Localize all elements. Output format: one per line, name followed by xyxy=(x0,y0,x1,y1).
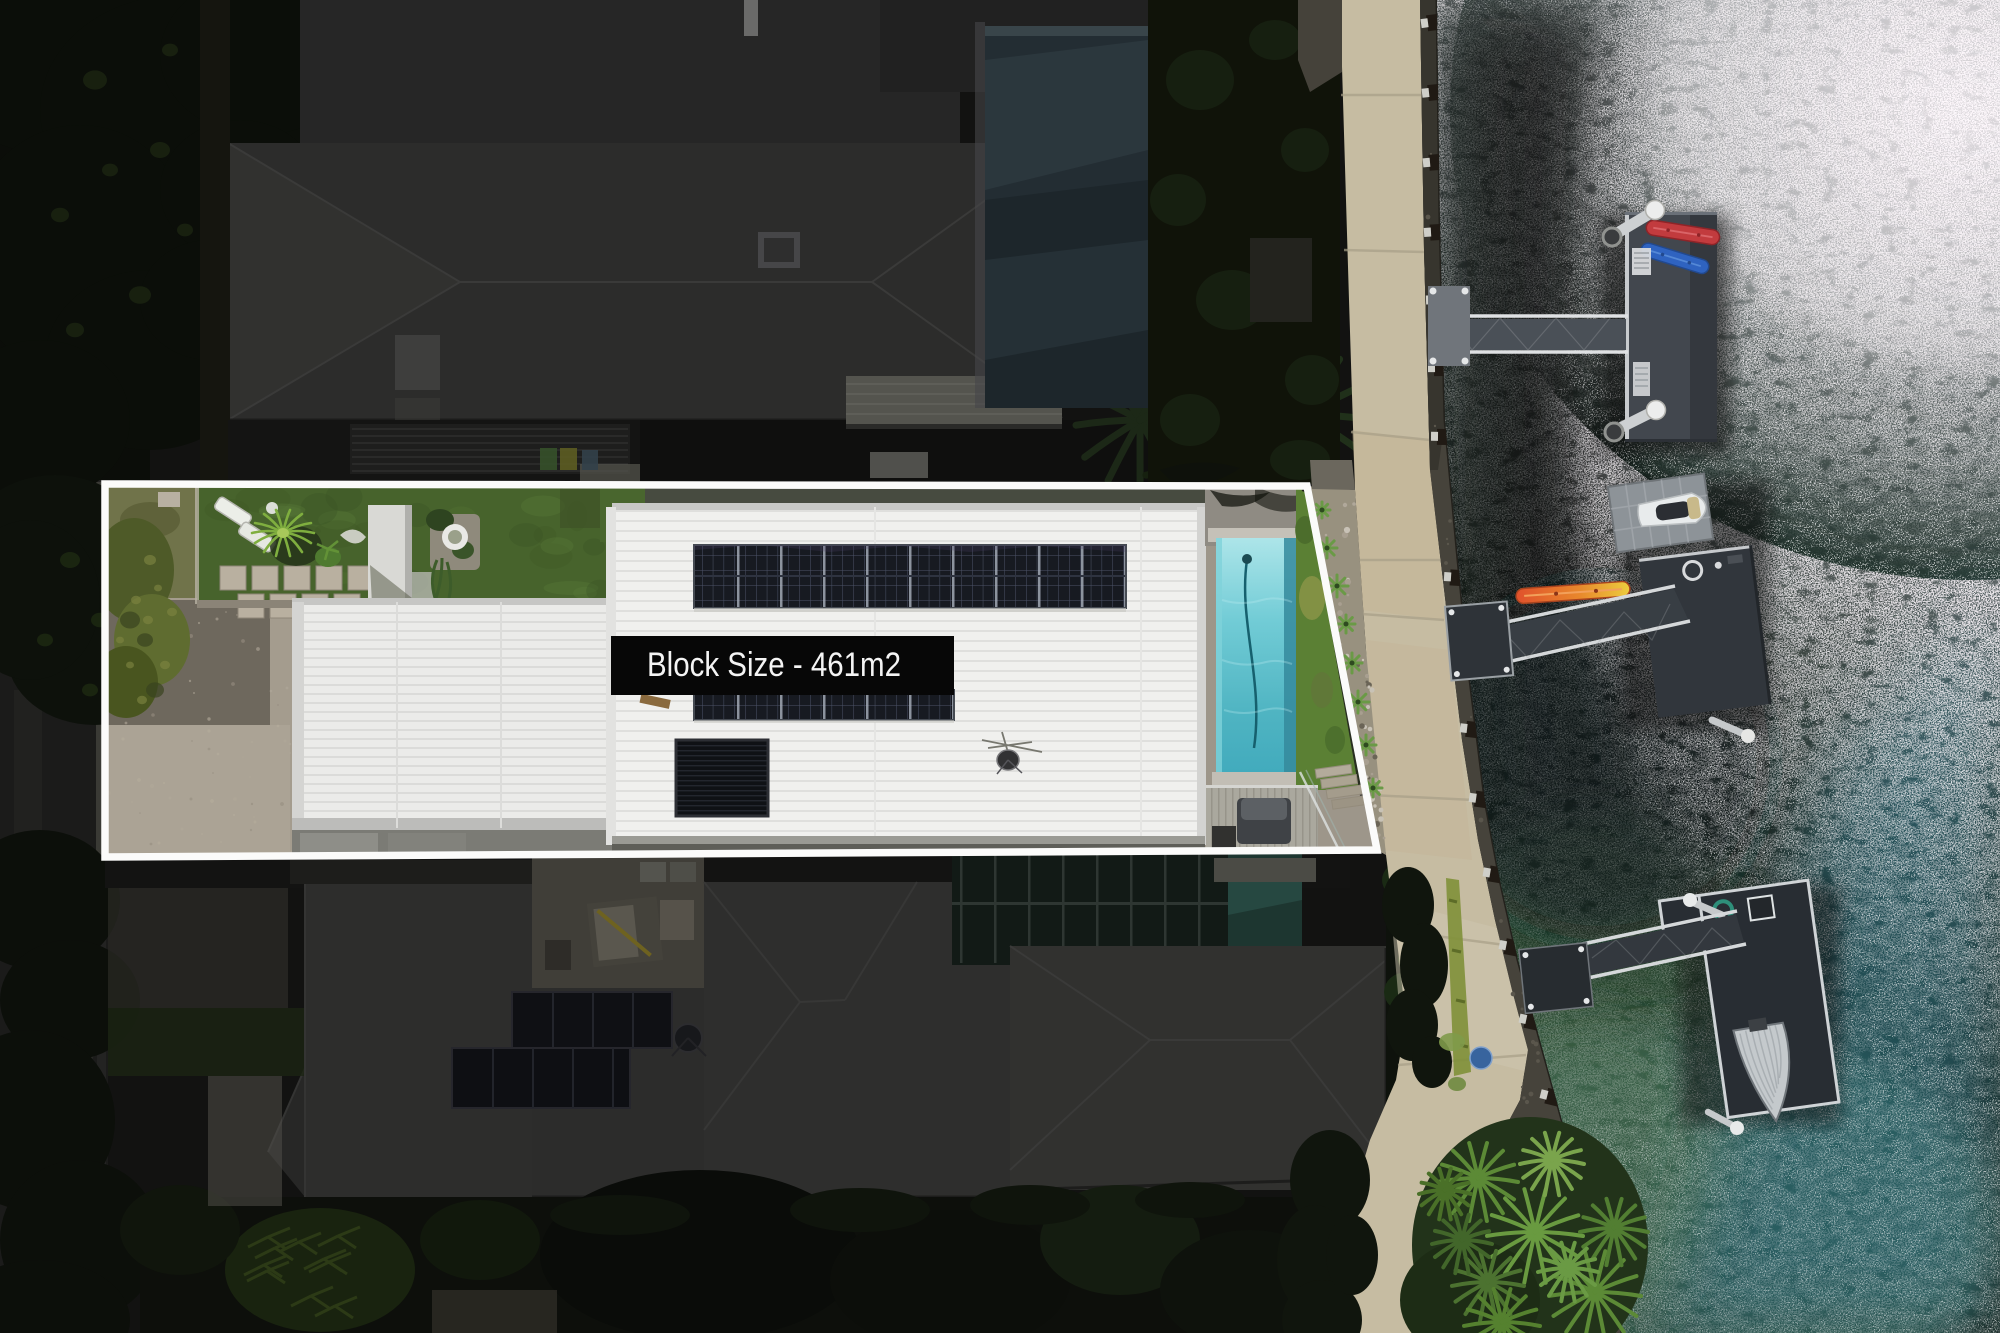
svg-text:Block Size - 461m2: Block Size - 461m2 xyxy=(647,646,901,684)
